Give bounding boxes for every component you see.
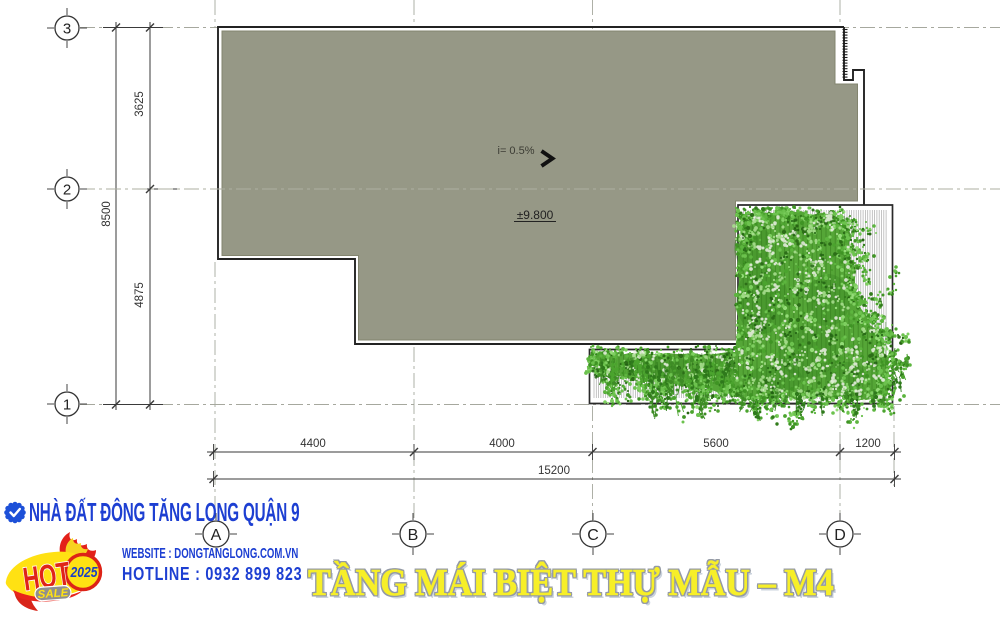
svg-text:SALE: SALE [37, 587, 69, 601]
svg-text:2025: 2025 [70, 565, 99, 581]
